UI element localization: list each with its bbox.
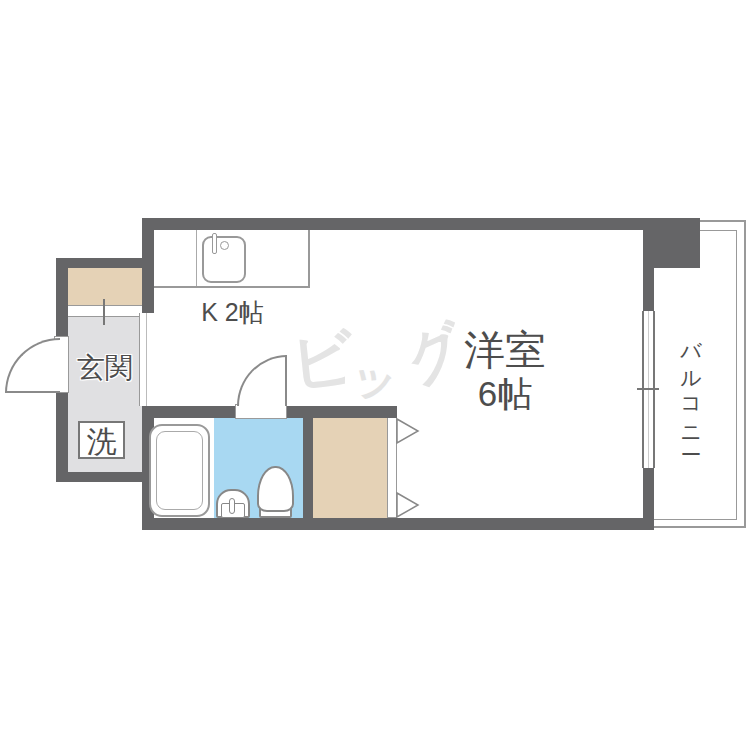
- faucet-icon: [212, 233, 217, 254]
- wall-right-upper: [643, 268, 654, 311]
- entrance-label: 玄関: [64, 349, 146, 387]
- step-tick: [103, 299, 105, 325]
- wall-top: [142, 218, 700, 230]
- entrance-door-arc: [5, 338, 60, 393]
- floor-plan: ビッグ: [0, 0, 750, 750]
- western-room-size: 6帖: [400, 374, 610, 413]
- window-sash-tick: [637, 388, 659, 390]
- shoe-cabinet: [68, 268, 142, 305]
- wall-entrance-left-lower: [56, 391, 68, 482]
- wash-basin-tap: [229, 498, 235, 514]
- bathtub: [149, 424, 210, 517]
- balcony-label: バルコニー: [677, 327, 705, 477]
- wall-entrance-left-upper: [56, 258, 68, 338]
- wall-bottom: [142, 518, 654, 530]
- entrance-step-line: [68, 305, 142, 317]
- bathtub-inner: [156, 431, 203, 510]
- wall-entrance-bottom: [56, 472, 154, 482]
- pillar-top-right: [643, 218, 700, 268]
- washer-box: 洗: [78, 421, 125, 459]
- closet: [313, 418, 387, 518]
- faucet-knob-icon: [220, 241, 229, 250]
- bathroom-door-arc: [237, 355, 287, 406]
- wall-bath-closet-divider: [303, 418, 313, 518]
- counter-divider: [196, 230, 197, 286]
- kitchen-counter: [154, 230, 310, 288]
- western-room-name: 洋室: [400, 328, 610, 374]
- bathroom-door-opening: [235, 404, 287, 419]
- closet-door-arrow: [396, 491, 420, 519]
- wall-entrance-top: [56, 258, 154, 268]
- kitchen-label: K 2帖: [160, 296, 305, 329]
- western-room-label: 洋室 6帖: [400, 328, 610, 413]
- closet-door-arrow: [396, 417, 420, 445]
